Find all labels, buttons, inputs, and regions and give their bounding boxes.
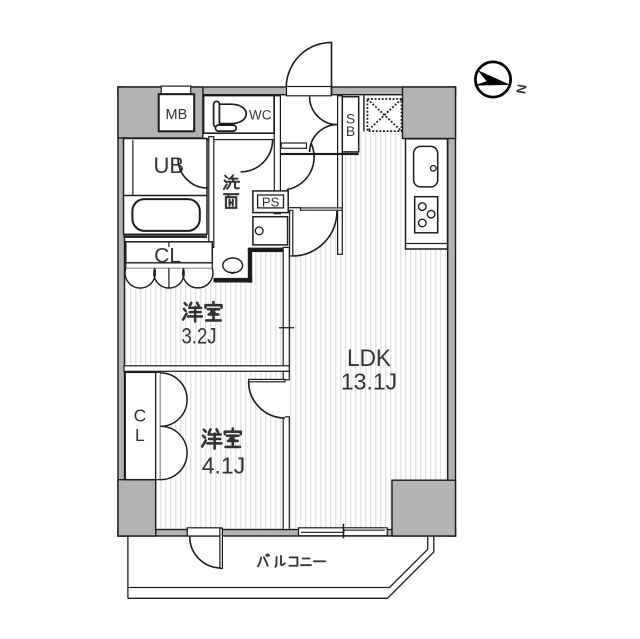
svg-text:B: B <box>346 123 355 139</box>
svg-text:3.2J: 3.2J <box>182 324 217 349</box>
svg-text:PS: PS <box>262 195 280 210</box>
svg-text:13.1J: 13.1J <box>341 369 397 395</box>
svg-text:C: C <box>134 405 147 425</box>
svg-text:WC: WC <box>249 108 272 123</box>
svg-text:L: L <box>135 425 145 445</box>
svg-text:MB: MB <box>166 107 188 123</box>
svg-text:4.1J: 4.1J <box>202 453 245 479</box>
